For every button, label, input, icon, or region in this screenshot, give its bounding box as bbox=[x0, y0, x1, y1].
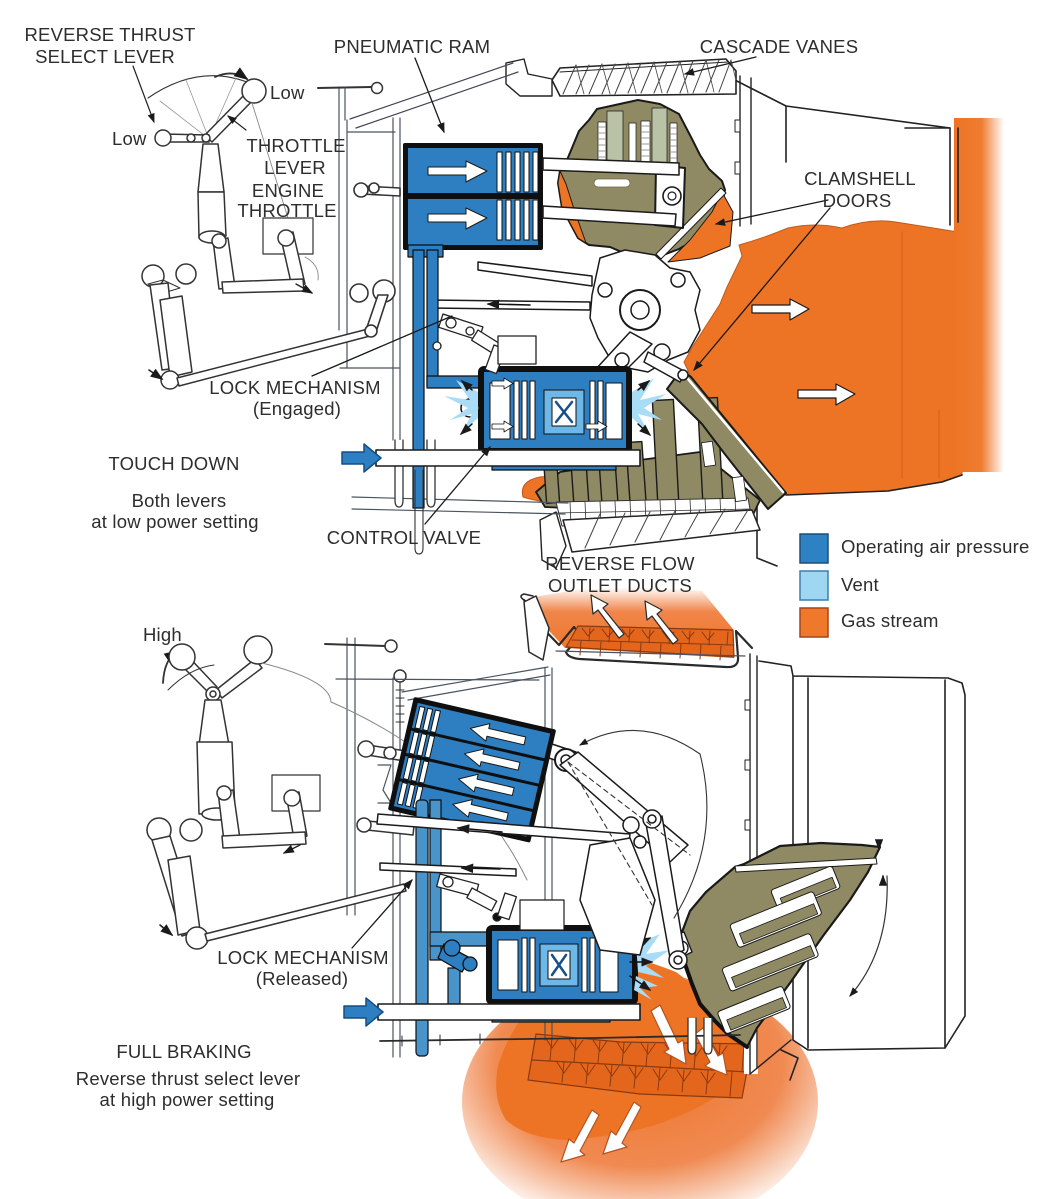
svg-text:ENGINE: ENGINE bbox=[252, 180, 324, 201]
svg-text:High: High bbox=[143, 624, 182, 645]
svg-text:Vent: Vent bbox=[841, 574, 879, 595]
svg-text:Low: Low bbox=[112, 128, 147, 149]
svg-text:at high power setting: at high power setting bbox=[100, 1089, 275, 1110]
svg-text:FULL BRAKING: FULL BRAKING bbox=[116, 1041, 251, 1062]
svg-text:CONTROL VALVE: CONTROL VALVE bbox=[327, 527, 481, 548]
svg-text:Reverse thrust select lever: Reverse thrust select lever bbox=[76, 1068, 300, 1089]
svg-text:SELECT LEVER: SELECT LEVER bbox=[35, 46, 175, 67]
svg-text:OUTLET DUCTS: OUTLET DUCTS bbox=[548, 575, 692, 596]
svg-text:PNEUMATIC RAM: PNEUMATIC RAM bbox=[334, 36, 490, 57]
svg-text:at low power setting: at low power setting bbox=[91, 511, 259, 532]
svg-text:Operating air pressure: Operating air pressure bbox=[841, 536, 1029, 557]
svg-text:THROTTLE: THROTTLE bbox=[237, 200, 336, 221]
svg-text:REVERSE THRUST: REVERSE THRUST bbox=[24, 24, 195, 45]
svg-text:DOORS: DOORS bbox=[823, 190, 892, 211]
svg-text:CLAMSHELL: CLAMSHELL bbox=[804, 168, 916, 189]
svg-text:(Engaged): (Engaged) bbox=[253, 398, 341, 419]
svg-text:LOCK MECHANISM: LOCK MECHANISM bbox=[217, 947, 388, 968]
svg-text:REVERSE FLOW: REVERSE FLOW bbox=[545, 553, 695, 574]
svg-text:THROTTLE: THROTTLE bbox=[246, 135, 345, 156]
svg-text:Both levers: Both levers bbox=[132, 490, 227, 511]
svg-text:LEVER: LEVER bbox=[264, 157, 326, 178]
svg-text:LOCK MECHANISM: LOCK MECHANISM bbox=[209, 377, 380, 398]
svg-text:(Released): (Released) bbox=[256, 968, 349, 989]
svg-text:Low: Low bbox=[270, 82, 305, 103]
svg-text:TOUCH DOWN: TOUCH DOWN bbox=[108, 453, 239, 474]
svg-text:Gas stream: Gas stream bbox=[841, 610, 939, 631]
svg-text:CASCADE VANES: CASCADE VANES bbox=[700, 36, 859, 57]
